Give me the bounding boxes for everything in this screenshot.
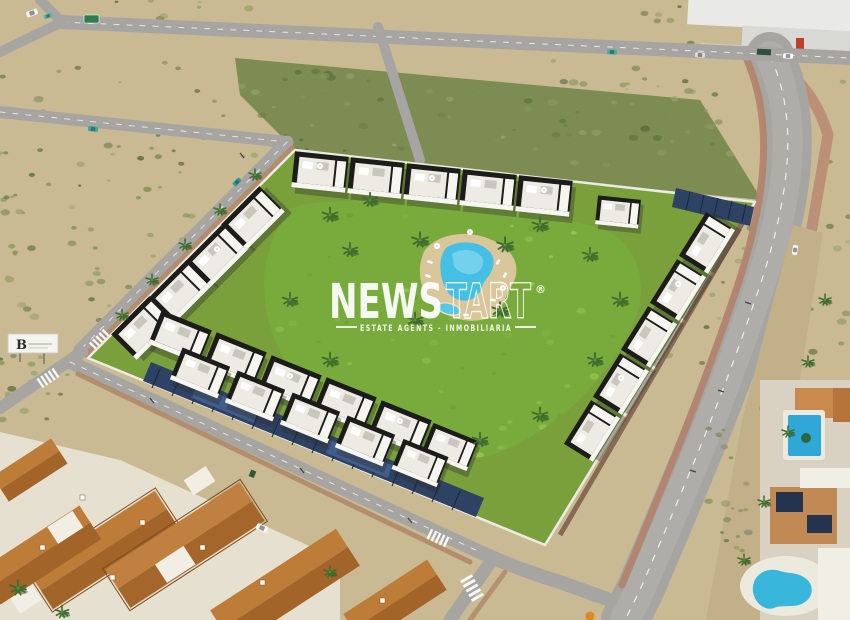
watermark: NEWS TART ® ESTATE AGENTS - INMOBILIARIA	[329, 274, 546, 334]
car	[695, 52, 705, 58]
red-truck	[796, 38, 804, 50]
green-traffic-sign	[84, 15, 99, 23]
watermark-tagline: ESTATE AGENTS - INMOBILIARIA	[360, 324, 512, 334]
rooftop-solar-panels	[776, 492, 803, 512]
aerial-photo-canvas: B NEWS TART ® ESTATE AGENTS - INMOBILIAR…	[0, 0, 850, 620]
watermark-brand-outline: TART	[446, 274, 531, 330]
road-sign	[757, 49, 771, 56]
aerial-photo: B NEWS TART ® ESTATE AGENTS - INMOBILIAR…	[0, 0, 850, 620]
watermark-brand-solid: NEWS	[329, 274, 443, 330]
car	[607, 49, 617, 55]
car	[783, 53, 793, 59]
registered-trademark-icon: ®	[535, 283, 546, 296]
billboard-letter: B	[16, 338, 27, 353]
